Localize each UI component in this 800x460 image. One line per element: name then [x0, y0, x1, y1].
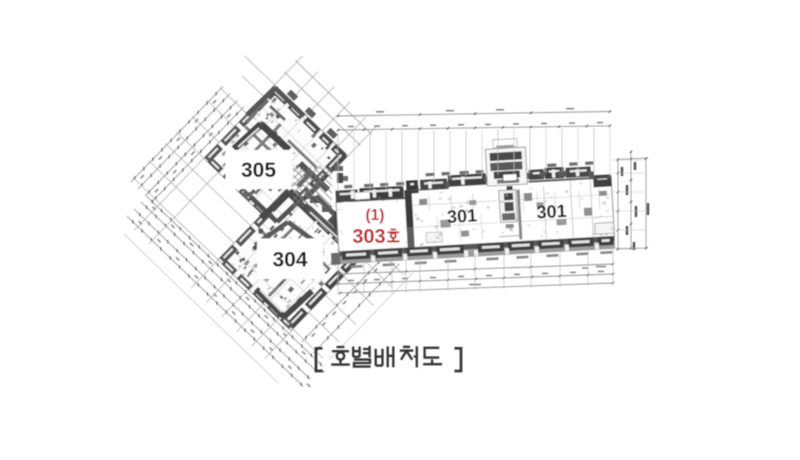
svg-text:301: 301	[446, 205, 477, 227]
svg-text:304: 304	[272, 249, 307, 272]
svg-text:303: 303	[352, 226, 385, 248]
svg-text:301: 301	[536, 201, 567, 223]
svg-text:305: 305	[241, 159, 276, 182]
svg-text:(1): (1)	[366, 207, 385, 224]
